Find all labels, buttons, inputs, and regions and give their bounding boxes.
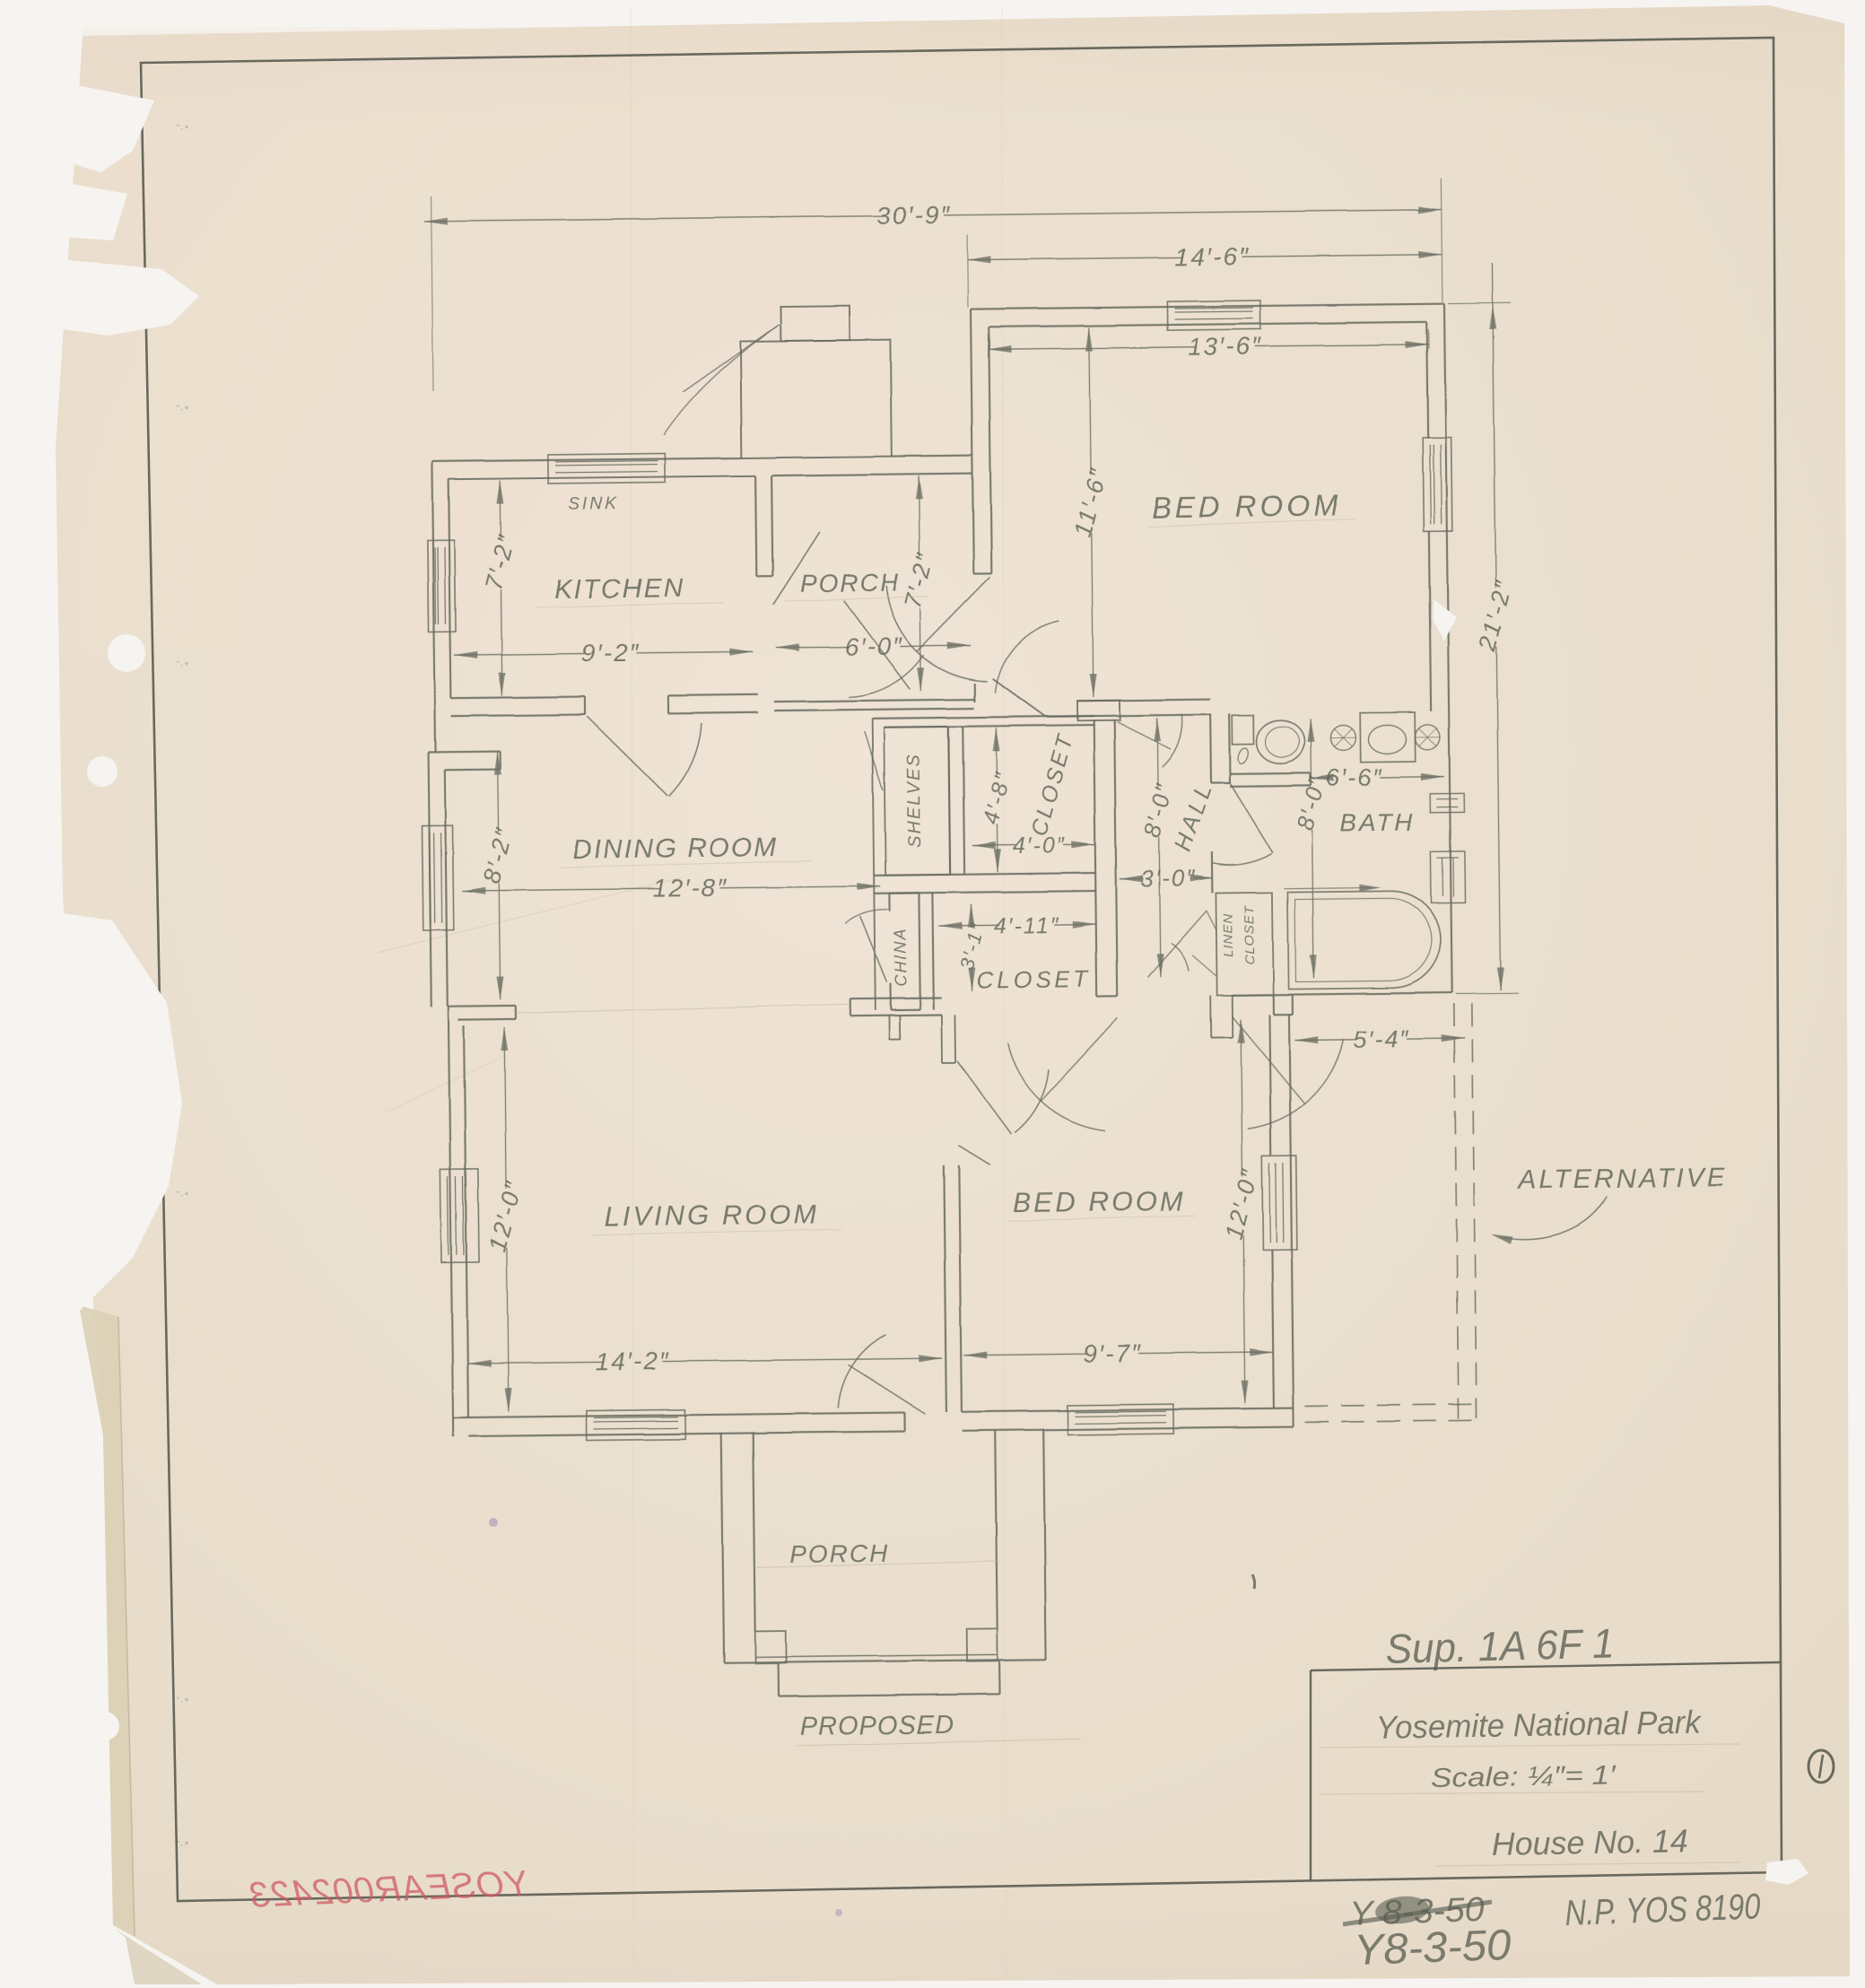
svg-text:LIVING ROOM: LIVING ROOM (604, 1199, 819, 1233)
svg-text:CLOSET: CLOSET (976, 965, 1091, 993)
svg-text:6′-0″: 6′-0″ (844, 632, 903, 660)
svg-text:13′-6″: 13′-6″ (1188, 332, 1263, 361)
svg-text:House No. 14: House No. 14 (1491, 1822, 1688, 1862)
svg-text:9′-2″: 9′-2″ (580, 639, 640, 667)
svg-text:14′-2″: 14′-2″ (596, 1347, 671, 1375)
svg-text:5′-4″: 5′-4″ (1353, 1025, 1410, 1053)
svg-text:PORCH: PORCH (800, 569, 900, 597)
svg-text:6′-6″: 6′-6″ (1326, 763, 1383, 791)
svg-text:ˆ·*: ˆ·* (176, 1696, 189, 1707)
svg-text:PROPOSED: PROPOSED (800, 1711, 955, 1741)
svg-text:4′-0″: 4′-0″ (1013, 833, 1067, 859)
svg-text:Y8-3-50: Y8-3-50 (1354, 1922, 1512, 1975)
svg-text:12′-8″: 12′-8″ (653, 874, 728, 902)
svg-text:DINING ROOM: DINING ROOM (572, 833, 778, 865)
svg-text:ˆ·*: ˆ·* (176, 1840, 189, 1851)
svg-text:14′-6″: 14′-6″ (1175, 242, 1251, 271)
svg-text:PORCH: PORCH (789, 1539, 889, 1568)
svg-text:Yosemite National Park: Yosemite National Park (1375, 1704, 1703, 1746)
svg-text:Sup. 1A 6F 1: Sup. 1A 6F 1 (1385, 1619, 1615, 1672)
svg-text:ˆ·*: ˆ·* (176, 124, 189, 135)
svg-text:SHELVES: SHELVES (904, 754, 925, 848)
svg-text:BATH: BATH (1339, 808, 1416, 837)
svg-text:ALTERNATIVE: ALTERNATIVE (1516, 1163, 1728, 1195)
svg-text:KITCHEN: KITCHEN (553, 573, 684, 605)
svg-text:30′-9″: 30′-9″ (876, 201, 952, 230)
svg-text:CLOSET: CLOSET (1242, 904, 1259, 964)
svg-text:ˆ·*: ˆ·* (176, 405, 189, 415)
svg-text:BED ROOM: BED ROOM (1013, 1185, 1186, 1218)
svg-text:ˆ·*: ˆ·* (176, 1190, 189, 1201)
svg-text:BED ROOM: BED ROOM (1151, 489, 1341, 524)
svg-text:4′-11″: 4′-11″ (994, 913, 1060, 939)
svg-text:9′-7″: 9′-7″ (1083, 1339, 1142, 1368)
svg-text:ˆ·*: ˆ·* (176, 660, 189, 671)
svg-text:N.P. YOS 8190: N.P. YOS 8190 (1564, 1887, 1761, 1933)
svg-text:LINEN: LINEN (1221, 913, 1237, 957)
svg-text:SINK: SINK (568, 494, 619, 514)
svg-text:Scale: ¼″= 1′: Scale: ¼″= 1′ (1431, 1760, 1617, 1793)
svg-text:3′-0″: 3′-0″ (1140, 865, 1196, 893)
svg-text:CHINA: CHINA (892, 927, 911, 986)
